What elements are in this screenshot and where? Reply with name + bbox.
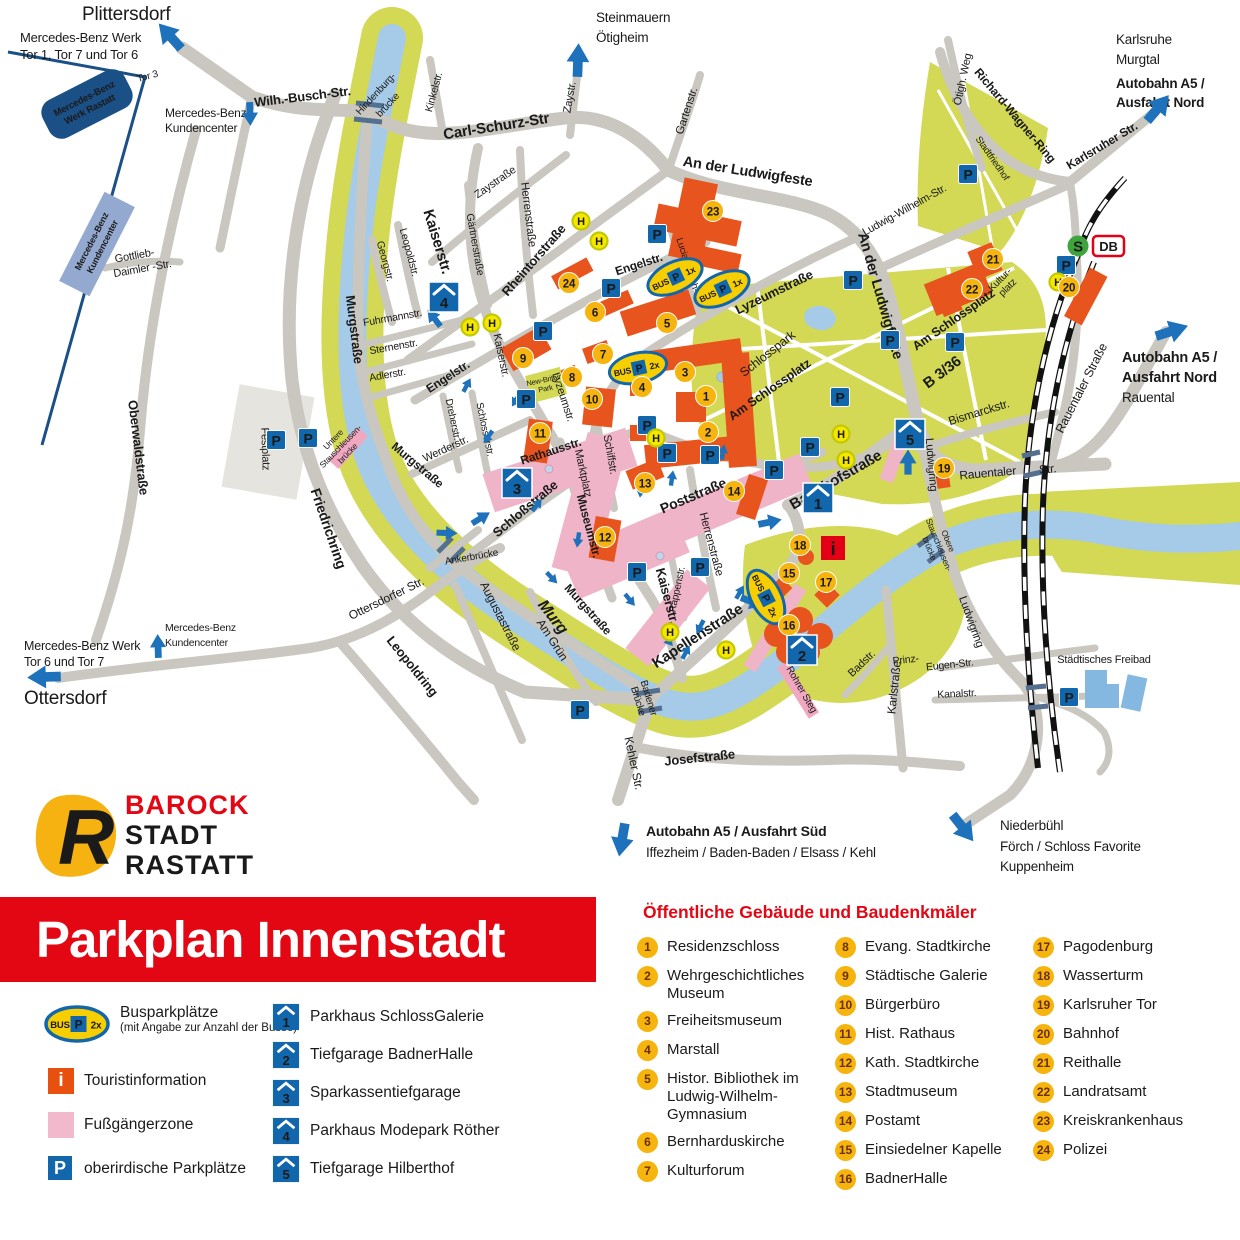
svg-text:R: R [58,793,114,881]
garage-label: Sparkassentiefgarage [310,1084,461,1102]
building-number-marker: 2 [698,422,719,443]
garage-item: 1 Parkhaus SchlossGalerie [272,1003,572,1041]
building-list-item: 14Postamt [835,1111,1033,1132]
parking-p-icon: P [844,271,863,290]
building-number-marker: 15 [779,563,800,584]
svg-text:Tor 1, Tor 7 und Tor 6: Tor 1, Tor 7 und Tor 6 [20,47,138,62]
building-number: 24 [1033,1140,1054,1161]
building-number-marker: 12 [595,527,616,548]
building-number-marker: 20 [1059,277,1080,298]
tourist-info-icon: i [821,536,845,560]
svg-text:P: P [848,273,857,289]
building-name: Histor. Bibliothek im Ludwig-Wilhelm-Gym… [667,1069,817,1124]
svg-text:5: 5 [282,1167,289,1182]
logo-word-stadt: STADT [125,820,254,850]
svg-text:Murgtal: Murgtal [1116,52,1160,67]
parking-p-icon: P [946,333,965,352]
svg-text:4: 4 [440,295,449,312]
garage-label: Tiefgarage Hilberthof [310,1160,454,1178]
svg-text:2: 2 [705,428,711,440]
mercedes-area: Mercedes-Benz Werk Rastatt Mercedes-Benz… [8,52,145,445]
building-list-item: 19Karlsruher Tor [1033,995,1223,1016]
svg-text:Steinmauern: Steinmauern [596,10,670,25]
building-list-item: 11Hist. Rathaus [835,1024,1033,1045]
building-number: 16 [835,1169,856,1190]
parking-garage-icon: 5 [895,419,925,449]
svg-text:BUS: BUS [50,1020,69,1031]
parking-p-icon: P [299,429,318,448]
logo-word-rastatt: RASTATT [125,850,254,880]
svg-text:Autobahn A5 /: Autobahn A5 / [1116,76,1205,91]
direction-arrow [608,821,636,858]
svg-text:Gartenstr.: Gartenstr. [674,86,700,136]
parking-p-icon: P [691,558,710,577]
svg-text:3: 3 [282,1091,289,1106]
svg-text:Autobahn A5 / Ausfahrt Süd: Autobahn A5 / Ausfahrt Süd [646,823,826,839]
parking-p-icon: P [1060,688,1079,707]
building-name: Stadtmuseum [865,1082,1015,1103]
building-number: 2 [637,966,658,987]
svg-text:H: H [577,216,585,228]
svg-text:H: H [837,429,845,441]
building-list-item: 4Marstall [637,1040,835,1061]
title-banner: Parkplan Innenstadt [0,897,596,982]
building-number: 11 [835,1024,856,1045]
legend-parking-row: P oberirdische Parkplätze [42,1154,282,1184]
parking-garage-icon: 4 [429,282,459,312]
building-name: Bürgerbüro [865,995,1015,1016]
svg-text:P: P [271,433,280,449]
svg-text:Kanalstr.: Kanalstr. [937,687,977,701]
svg-text:Ausfahrt Nord: Ausfahrt Nord [1122,370,1217,386]
legend-pedestrian-row: Fußgängerzone [42,1110,282,1140]
svg-text:P: P [950,335,959,351]
garage-item: 5 Tiefgarage Hilberthof [272,1155,572,1193]
building-name: Freiheitsmuseum [667,1011,817,1032]
parking-p-icon: P [571,701,590,720]
building-number: 3 [637,1011,658,1032]
building-name: Bahnhof [1063,1024,1213,1045]
building-number-marker: 18 [790,535,811,556]
svg-text:Karlsruhe: Karlsruhe [1116,32,1172,47]
svg-text:P: P [705,448,714,464]
building-name: Polizei [1063,1140,1213,1161]
parking-p-icon: P [881,331,900,350]
bus-stop-h-icon: H [662,624,679,641]
logo-emblem: R [30,788,125,883]
building-number-marker: 21 [983,249,1004,270]
svg-text:H: H [466,322,474,334]
building-number-marker: 16 [779,615,800,636]
svg-text:H: H [595,236,603,248]
garage-label: Parkhaus SchlossGalerie [310,1008,484,1026]
svg-text:H: H [722,645,730,657]
svg-text:P: P [575,703,584,719]
building-number-marker: 14 [724,481,745,502]
svg-text:Kaiserstr.: Kaiserstr. [419,207,455,275]
building-number: 1 [637,937,658,958]
svg-text:Carl-Schurz-Str: Carl-Schurz-Str [442,110,551,144]
building-list-item: 9Städtische Galerie [835,966,1033,987]
parking-p-icon: P [701,446,720,465]
building-number-marker: 7 [593,344,614,365]
legend-touristinfo-label: Touristinformation [84,1072,206,1090]
svg-text:21: 21 [987,255,1000,267]
building-number-marker: 13 [635,473,656,494]
svg-text:P: P [632,565,641,581]
building-number: 5 [637,1069,658,1090]
parking-p-icon: P [602,279,621,298]
svg-text:H: H [652,433,660,445]
svg-text:i: i [831,539,836,559]
building-list-item: 1Residenzschloss [637,937,835,958]
building-number-marker: 4 [632,377,653,398]
city-map: P H BUS P [0,0,1240,895]
svg-text:Kuppenheim: Kuppenheim [1000,859,1074,874]
svg-text:1: 1 [703,392,710,404]
svg-text:P: P [303,431,312,447]
svg-text:5: 5 [664,319,671,331]
building-number-marker: 8 [562,367,583,388]
bus-stop-h-icon: H [718,642,735,659]
svg-text:Autobahn A5 /: Autobahn A5 / [1122,350,1217,366]
building-list-item: 21Reithalle [1033,1053,1223,1074]
svg-text:Mercedes-Benz: Mercedes-Benz [165,106,247,120]
bus-stop-h-icon: H [484,315,501,332]
building-list-item: 13Stadtmuseum [835,1082,1033,1103]
svg-text:12: 12 [599,533,611,545]
svg-text:Oberwaldstraße: Oberwaldstraße [125,399,152,496]
svg-text:17: 17 [820,578,832,590]
building-list-item: 15Einsiedelner Kapelle [835,1140,1033,1161]
building-number-marker: 17 [816,572,837,593]
parking-p-icon: P [1057,256,1076,275]
building-number: 8 [835,937,856,958]
svg-text:13: 13 [639,479,651,491]
bus-parking-oval-icon: BUS P 2x [42,1002,112,1046]
legend-bus-row: BUS P 2x Busparkplätze (mit Angabe zur A… [42,1002,282,1048]
building-list-item: 18Wasserturm [1033,966,1223,987]
building-list-item: 6Bernharduskirche [637,1132,835,1153]
svg-text:P: P [521,392,530,408]
building-name: Bernharduskirche [667,1132,817,1153]
building-list-item: 23Kreiskrankenhaus [1033,1111,1223,1132]
building-name: Hist. Rathaus [865,1024,1015,1045]
barock-stadt-rastatt-logo: R BAROCK STADT RASTATT [30,788,360,888]
pedestrian-zone-swatch [48,1112,74,1138]
page-title: Parkplan Innenstadt [0,897,596,982]
buildings-heading: Öffentliche Gebäude und Baudenkmäler [643,902,1227,923]
building-list-item: 16BadnerHalle [835,1169,1033,1190]
svg-text:5: 5 [906,432,914,449]
parking-garage-icon: 3 [502,468,532,498]
svg-text:P: P [606,281,615,297]
svg-text:6: 6 [592,308,598,320]
building-list-item: 10Bürgerbüro [835,995,1033,1016]
svg-text:11: 11 [534,429,547,441]
building-name: Kulturforum [667,1161,817,1182]
parking-p-icon: P [267,431,286,450]
building-name: Karlsruher Tor [1063,995,1213,1016]
bus-stop-h-icon: H [573,213,590,230]
direction-arrow [621,591,639,610]
legend-bus-label: Busparkplätze [120,1004,297,1022]
svg-text:Mercedes-Benz Werk: Mercedes-Benz Werk [20,30,142,45]
building-number: 22 [1033,1082,1054,1103]
svg-text:15: 15 [783,569,796,581]
building-number: 19 [1033,995,1054,1016]
svg-text:P: P [652,227,661,243]
svg-text:P: P [662,446,671,462]
building-list-item: 5Histor. Bibliothek im Ludwig-Wilhelm-Gy… [637,1069,835,1124]
svg-text:Mercedes-Benz: Mercedes-Benz [165,622,236,634]
svg-text:Ötigheim: Ötigheim [596,30,648,45]
legend: BUS P 2x Busparkplätze (mit Angabe zur A… [42,1002,282,1198]
garage-icon-4: 4 [272,1117,300,1145]
building-list-item: 12Kath. Stadtkirche [835,1053,1033,1074]
svg-text:Förch / Schloss Favorite: Förch / Schloss Favorite [1000,839,1141,854]
building-number: 23 [1033,1111,1054,1132]
svg-text:24: 24 [563,279,576,291]
svg-text:1: 1 [814,496,822,513]
building-number-marker: 5 [657,313,678,334]
legend-parking-label: oberirdische Parkplätze [84,1160,246,1178]
svg-text:Karlsruher Str.: Karlsruher Str. [1064,119,1140,172]
parking-p-icon: P [628,563,647,582]
parking-p-icon: P [801,438,820,457]
parking-p-icon: P [534,322,553,341]
building-number: 6 [637,1132,658,1153]
svg-text:Städtisches Freibad: Städtisches Freibad [1057,654,1150,666]
building-name: Residenzschloss [667,937,817,958]
building-list-item: 2Wehrgeschichtliches Museum [637,966,835,1003]
logo-word-barock: BAROCK [125,790,254,820]
building-name: BadnerHalle [865,1169,1015,1190]
svg-text:4: 4 [639,383,646,395]
public-buildings-list: Öffentliche Gebäude und Baudenkmäler 1Re… [637,902,1227,1198]
building-name: Kath. Stadtkirche [865,1053,1015,1074]
building-number: 10 [835,995,856,1016]
building-number-marker: 10 [582,389,603,410]
svg-text:P: P [1064,690,1073,706]
building-list-item: 17Pagodenburg [1033,937,1223,958]
building-name: Postamt [865,1111,1015,1132]
parking-garage-icon: 2 [787,635,817,665]
garage-icon-1: 1 [272,1003,300,1031]
svg-text:H: H [842,455,850,467]
svg-text:3: 3 [513,481,521,498]
building-number-marker: 6 [585,302,606,323]
svg-text:9: 9 [520,354,526,366]
svg-text:P: P [695,560,704,576]
parking-garage-icon: 1 [803,483,833,513]
svg-text:2: 2 [798,648,806,665]
svg-text:H: H [666,627,674,639]
svg-text:Str.: Str. [1038,461,1056,476]
svg-text:18: 18 [794,541,807,553]
station-icons: S DB [1068,236,1125,257]
building-number: 4 [637,1040,658,1061]
building-number: 15 [835,1140,856,1161]
svg-text:2: 2 [282,1053,289,1068]
building-number: 17 [1033,937,1054,958]
building-number: 13 [835,1082,856,1103]
parking-p-icon: P [648,225,667,244]
svg-text:19: 19 [938,464,950,476]
svg-text:Rauental: Rauental [1122,390,1175,405]
bus-stop-h-icon: H [833,426,850,443]
building-list-item: 22Landratsamt [1033,1082,1223,1103]
building-number: 14 [835,1111,856,1132]
building-name: Marstall [667,1040,817,1061]
tourist-info-icon: i [48,1068,74,1094]
direction-arrow [468,506,493,529]
building-number-marker: 22 [962,279,983,300]
direction-arrow [543,569,561,587]
building-list-item: 3Freiheitsmuseum [637,1011,835,1032]
svg-text:Iffezheim / Baden-Baden / Elsa: Iffezheim / Baden-Baden / Elsass / Kehl [646,845,876,860]
building-number-marker: 24 [559,273,580,294]
building-number: 20 [1033,1024,1054,1045]
building-number: 9 [835,966,856,987]
legend-bus-sublabel: (mit Angabe zur Anzahl der Busse) [120,1022,297,1034]
svg-text:4: 4 [282,1129,290,1144]
svg-text:1: 1 [282,1015,289,1030]
svg-text:S: S [1073,239,1083,256]
svg-text:7: 7 [600,350,606,362]
building-number-marker: 11 [530,423,551,444]
svg-text:23: 23 [707,207,719,219]
svg-text:Tor 3: Tor 3 [136,69,160,85]
building-number: 18 [1033,966,1054,987]
building-number: 21 [1033,1053,1054,1074]
garage-icon-5: 5 [272,1155,300,1183]
svg-text:2x: 2x [91,1021,102,1032]
svg-text:Niederbühl: Niederbühl [1000,818,1063,833]
direction-arrow [150,634,167,658]
building-list-item: 8Evang. Stadtkirche [835,937,1033,958]
bus-stop-h-icon: H [591,233,608,250]
svg-text:P: P [805,440,814,456]
svg-text:22: 22 [966,285,978,297]
svg-text:P: P [885,333,894,349]
svg-text:P: P [75,1018,83,1032]
garage-label: Tiefgarage BadnerHalle [310,1046,473,1064]
building-number-marker: 1 [696,386,717,407]
parking-p-icon: P [517,390,536,409]
building-name: Landratsamt [1063,1082,1213,1103]
svg-text:20: 20 [1063,283,1075,295]
parking-p-icon: P [765,461,784,480]
parking-p-icon: P [831,388,850,407]
garage-item: 4 Parkhaus Modepark Röther [272,1117,572,1155]
svg-text:P: P [963,167,972,183]
parkplan-rastatt-map-poster: P H BUS P [0,0,1240,1240]
building-name: Einsiedelner Kapelle [865,1140,1015,1161]
building-name: Städtische Galerie [865,966,1015,987]
svg-text:H: H [488,318,496,330]
building-number-marker: 23 [703,201,724,222]
building-name: Wasserturm [1063,966,1213,987]
svg-text:3: 3 [682,368,688,380]
svg-text:P: P [835,390,844,406]
svg-text:16: 16 [783,621,795,633]
direction-arrow [757,512,784,533]
bus-stop-h-icon: H [648,430,665,447]
building-number-marker: 3 [675,362,696,383]
building-number-marker: 19 [934,458,955,479]
building-list-item: 24Polizei [1033,1140,1223,1161]
svg-text:P: P [769,463,778,479]
garage-icon-3: 3 [272,1079,300,1107]
svg-text:P: P [538,324,547,340]
svg-text:Kundencenter: Kundencenter [165,637,229,649]
building-name: Evang. Stadtkirche [865,937,1015,958]
svg-text:Ottersdorf: Ottersdorf [24,688,107,709]
building-name: Wehrgeschichtliches Museum [667,966,817,1003]
building-list-item: 20Bahnhof [1033,1024,1223,1045]
legend-pedestrian-label: Fußgängerzone [84,1116,193,1134]
svg-text:P: P [1061,258,1070,274]
building-name: Kreiskrankenhaus [1063,1111,1213,1132]
garage-label: Parkhaus Modepark Röther [310,1122,500,1140]
svg-text:Plittersdorf: Plittersdorf [82,4,171,25]
building-name: Reithalle [1063,1053,1213,1074]
svg-text:8: 8 [569,373,576,385]
parking-p-icon: P [959,165,978,184]
garage-list: 1 Parkhaus SchlossGalerie 2 Tiefgarage B… [272,1003,572,1193]
building-number-marker: 9 [513,348,534,369]
garage-item: 2 Tiefgarage BadnerHalle [272,1041,572,1079]
freibad-buildings [1085,670,1147,712]
building-number: 12 [835,1053,856,1074]
bus-stop-h-icon: H [838,452,855,469]
direction-arrow [666,470,678,487]
svg-text:Kundencenter: Kundencenter [165,121,238,135]
surface-parking-icon: P [48,1156,72,1180]
garage-item: 3 Sparkassentiefgarage [272,1079,572,1117]
svg-text:Tor 6 und Tor 7: Tor 6 und Tor 7 [24,655,104,669]
svg-text:14: 14 [728,487,741,499]
building-number: 7 [637,1161,658,1182]
svg-text:10: 10 [586,395,598,407]
bus-stop-h-icon: H [462,319,479,336]
building-list-item: 7Kulturforum [637,1161,835,1182]
svg-text:Mercedes-Benz Werk: Mercedes-Benz Werk [24,639,141,653]
svg-text:DB: DB [1099,239,1117,254]
garage-icon-2: 2 [272,1041,300,1069]
legend-touristinfo-row: i Touristinformation [42,1066,282,1096]
direction-arrow [566,43,590,77]
building-name: Pagodenburg [1063,937,1213,958]
